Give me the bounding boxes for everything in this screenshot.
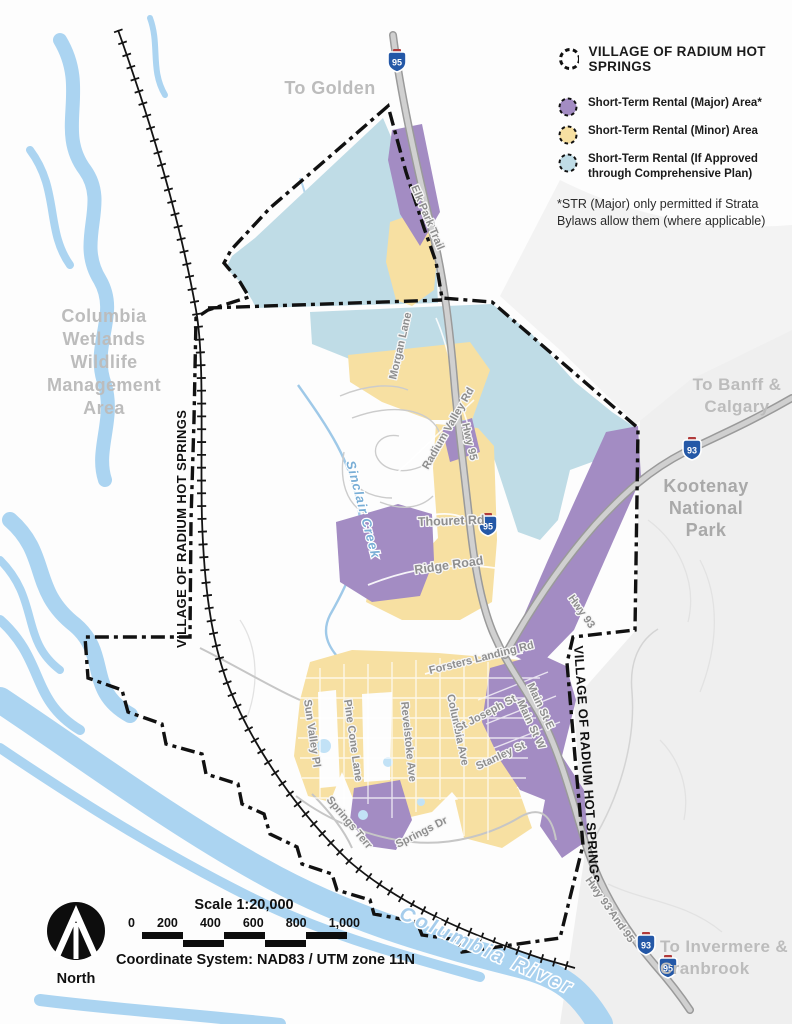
columbia-river-braid: [40, 1000, 280, 1024]
scale-segment: [265, 940, 306, 947]
to-golden-label: To Golden: [284, 78, 375, 98]
gap: [362, 692, 392, 782]
scale-tick: 200: [157, 916, 178, 930]
wetlands-label: Columbia Wetlands Wildlife Management Ar…: [47, 306, 161, 418]
wetlands-line: Columbia: [61, 306, 147, 326]
swatch-circle: [560, 155, 577, 172]
scale-segment: [142, 932, 183, 939]
legend-footnote: *STR (Major) only permitted if Strata By…: [557, 196, 791, 230]
pond: [417, 798, 425, 806]
str-conditional-swatch: [557, 152, 579, 174]
village-boundary-label-west: VILLAGE OF RADIUM HOT SPRINGS: [174, 410, 189, 648]
legend-item-conditional: Short-Term Rental (If Approved through C…: [557, 152, 791, 182]
swatch-circle: [560, 127, 577, 144]
str-major-swatch: [557, 96, 579, 118]
wetlands-line: Wetlands: [63, 329, 146, 349]
shield-95-north: 95: [388, 49, 406, 72]
kootenay-line: Park: [686, 520, 727, 540]
north-arrow-icon: [44, 899, 108, 963]
river-braid: [150, 18, 165, 95]
river-braid: [30, 150, 70, 265]
scale-title: Scale 1:20,000: [116, 897, 372, 913]
scale-ticks: 0 200 400 600 800 1,000: [128, 916, 360, 930]
to-banff-line: Calgary: [704, 397, 769, 416]
map-page: 95 93 95 93 95 To Golden Columbia Wetlan…: [0, 0, 792, 1024]
scale-tick: 400: [200, 916, 221, 930]
to-banff-line: To Banff &: [693, 375, 782, 394]
north-stem: [74, 923, 79, 959]
legend: VILLAGE OF RADIUM HOT SPRINGS Short-Term…: [557, 44, 791, 230]
legend-item-major: Short-Term Rental (Major) Area*: [557, 96, 791, 118]
scale-tick: 1,000: [329, 916, 360, 930]
legend-title: VILLAGE OF RADIUM HOT SPRINGS: [589, 44, 791, 74]
water: [0, 18, 600, 1024]
wetlands-line: Area: [83, 398, 125, 418]
scale-segment: [306, 932, 347, 939]
legend-label-major: Short-Term Rental (Major) Area*: [588, 96, 762, 111]
north-arrow: North: [42, 899, 110, 987]
legend-label-minor: Short-Term Rental (Minor) Area: [588, 124, 758, 139]
scale-tick: 600: [243, 916, 264, 930]
scale-bar-segments: [142, 932, 347, 947]
dashed-circle: [561, 50, 579, 69]
legend-label-conditional: Short-Term Rental (If Approved through C…: [588, 152, 791, 182]
to-invermere-line: Cranbrook: [660, 959, 750, 978]
to-invermere-line: To Invermere &: [660, 937, 788, 956]
shield-93-kootenay: 93: [683, 437, 701, 460]
legend-title-row: VILLAGE OF RADIUM HOT SPRINGS: [557, 44, 791, 74]
scale-bar: Scale 1:20,000 0 200 400 600 800 1,000 C…: [116, 897, 372, 968]
kootenay-line: Kootenay: [663, 476, 748, 496]
scale-segment: [224, 932, 265, 939]
village-boundary-icon: [557, 46, 579, 72]
thouret-rd-label: Thouret Rd: [418, 513, 485, 529]
shield-number: 93: [641, 941, 651, 951]
scale-segment: [183, 940, 224, 947]
wetlands-line: Management: [47, 375, 161, 395]
shield-number: 93: [687, 446, 697, 456]
coordinate-system: Coordinate System: NAD83 / UTM zone 11N: [116, 952, 372, 968]
kootenay-line: National: [669, 498, 743, 518]
str-minor-swatch: [557, 124, 579, 146]
str-minor-valley: [348, 342, 490, 420]
wetlands-line: Wildlife: [70, 352, 137, 372]
shield-93-south: 93: [637, 932, 655, 955]
swatch-circle: [560, 99, 577, 116]
pond: [358, 810, 368, 820]
scale-tick: 800: [286, 916, 307, 930]
north-label: North: [42, 971, 110, 987]
scale-tick: 0: [128, 916, 135, 930]
legend-item-minor: Short-Term Rental (Minor) Area: [557, 124, 791, 146]
shield-number: 95: [392, 58, 402, 68]
